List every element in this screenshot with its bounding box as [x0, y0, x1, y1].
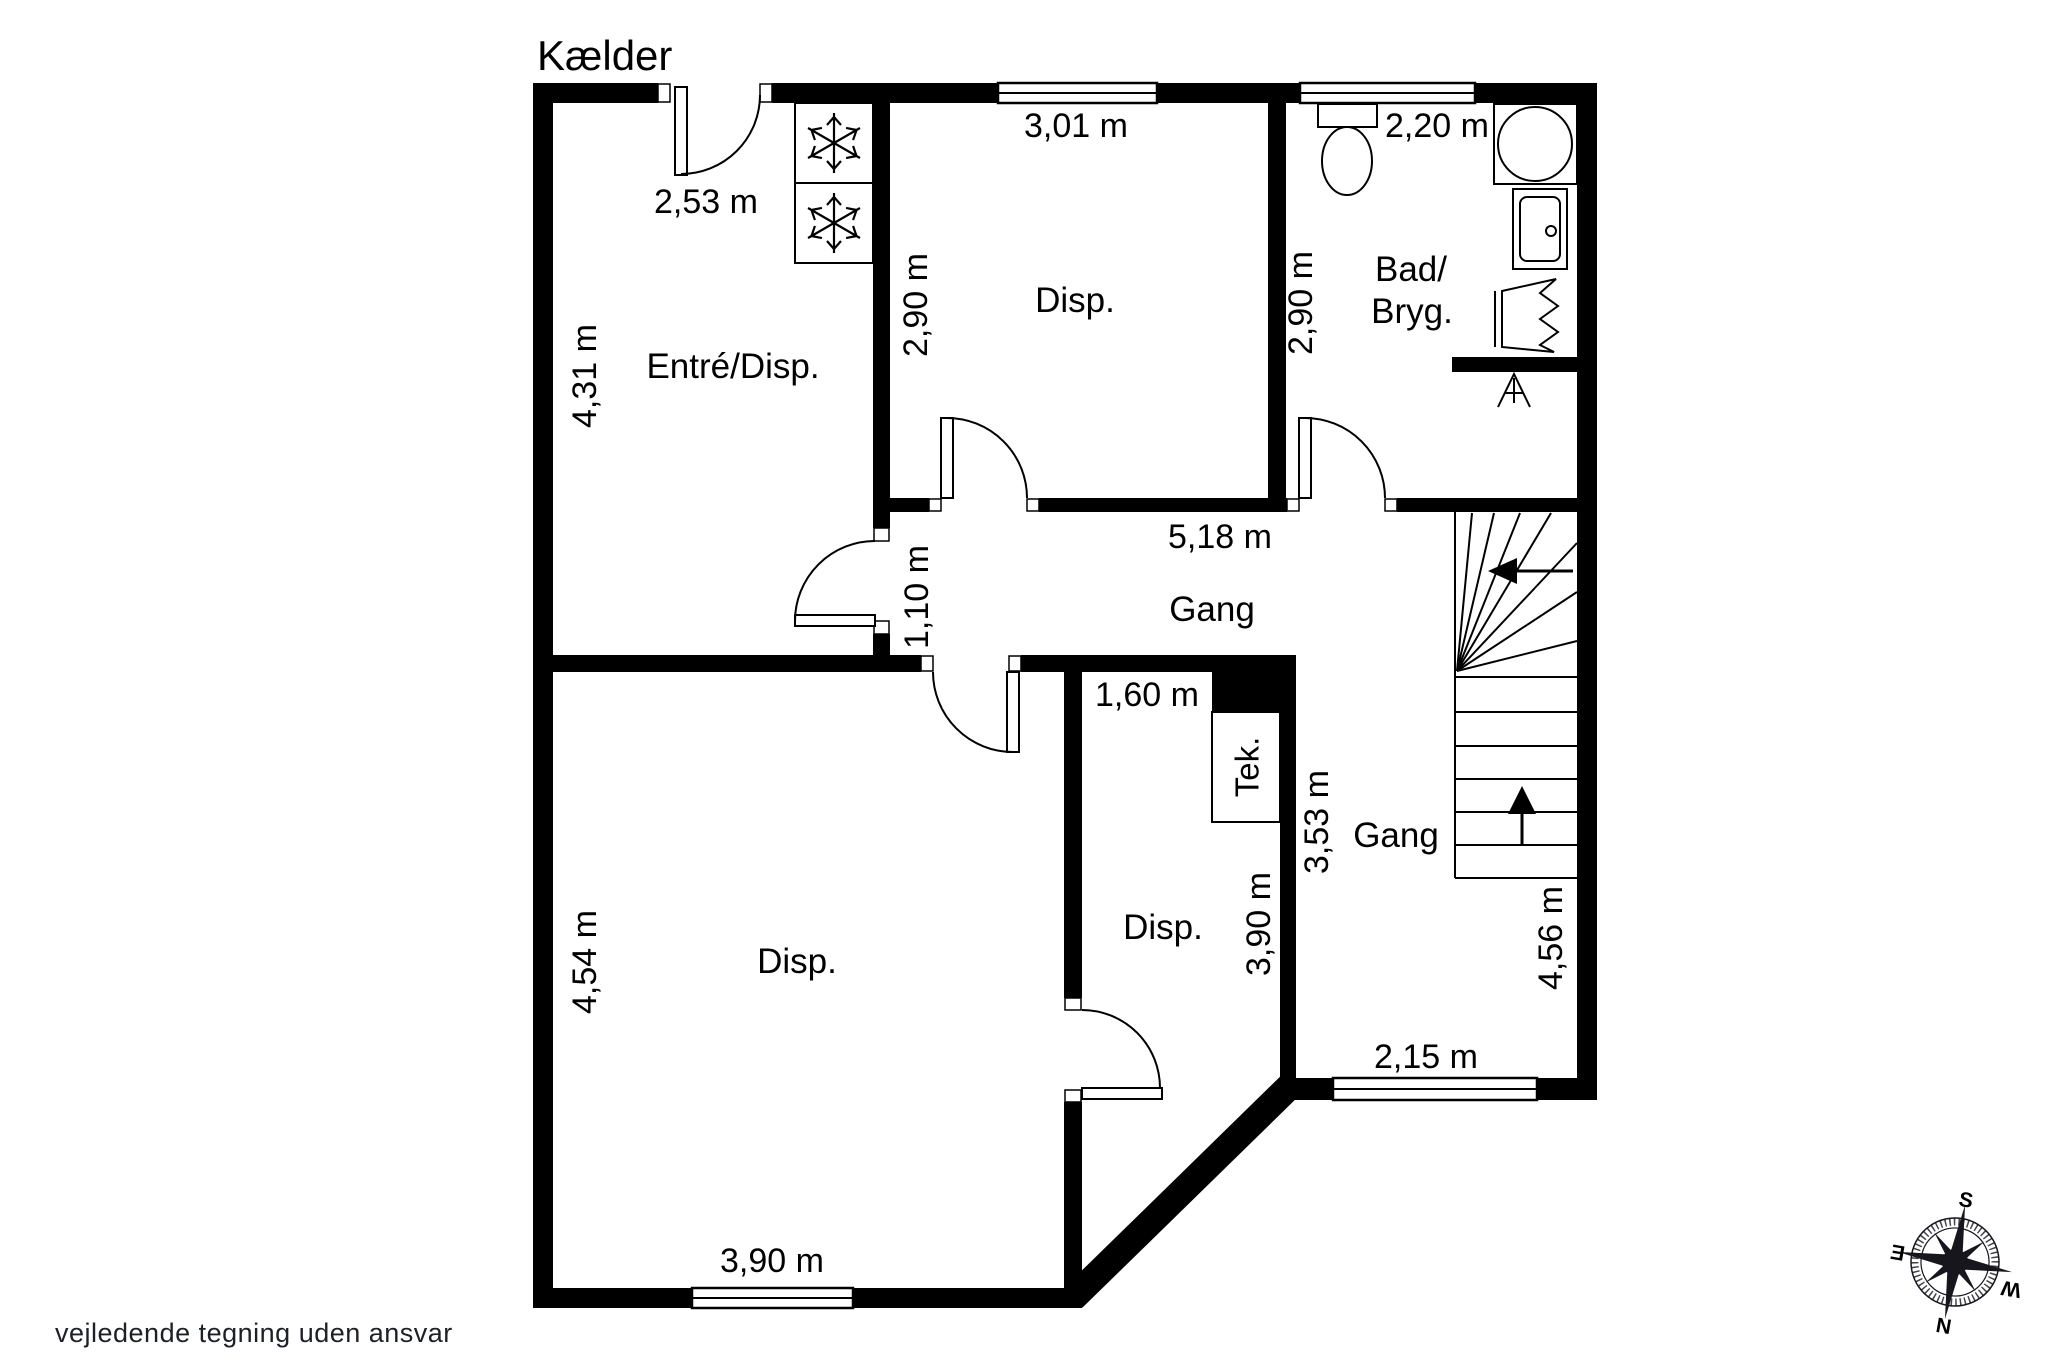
floorplan-drawing: Tek. Kælder Entré/Disp. Disp. Bad/ Bryg.… — [0, 0, 2048, 1360]
compass-rose: S E W N — [1878, 1178, 2037, 1350]
washing-machine-icon — [1494, 104, 1577, 184]
room-label-disp-mid: Disp. — [1123, 908, 1203, 947]
room-label-tek: Tek. — [1229, 737, 1266, 798]
stair-arrow-start-icon — [1498, 374, 1530, 407]
dimension-label: 1,10 m — [898, 545, 936, 649]
door-bigdisp-middisp — [1065, 998, 1162, 1102]
dimension-label: 4,56 m — [1532, 886, 1570, 990]
entry-door — [658, 84, 772, 175]
dimension-label: 5,18 m — [1168, 518, 1272, 556]
room-label-bad-line1: Bad/ — [1375, 250, 1447, 289]
dimension-label: 2,20 m — [1385, 107, 1489, 145]
toilet-icon — [1318, 104, 1377, 195]
floorplan-page: Tek. Kælder Entré/Disp. Disp. Bad/ Bryg.… — [0, 0, 2048, 1360]
window — [692, 1288, 853, 1308]
compass-letter-east: E — [1889, 1241, 1907, 1266]
dimension-label: 3,90 m — [1240, 872, 1278, 976]
window — [998, 83, 1157, 103]
dimension-label: 3,01 m — [1024, 107, 1128, 145]
compass-letter-north: N — [1934, 1314, 1953, 1339]
winder-treads — [1457, 513, 1577, 671]
dimension-label: 4,54 m — [566, 910, 604, 1014]
door-gang-bigdisp — [921, 656, 1021, 752]
chimney-block — [1212, 672, 1293, 712]
door-entre-gang — [795, 528, 889, 634]
stairs — [1455, 374, 1577, 878]
floorplan-title: Kælder — [537, 32, 672, 79]
dimension-label: 2,90 m — [897, 253, 935, 357]
dimension-label: 2,90 m — [1282, 251, 1320, 355]
room-label-bad-line2: Bryg. — [1371, 292, 1453, 331]
stair-arrow-up-icon — [1508, 786, 1536, 846]
freezer-icons — [795, 103, 873, 263]
dimension-label: 3,53 m — [1298, 770, 1336, 874]
door-gang-bad — [1287, 418, 1397, 511]
room-label-disp-top: Disp. — [1035, 281, 1115, 320]
compass-letter-south: S — [1957, 1188, 1975, 1213]
dimension-label: 4,31 m — [566, 324, 604, 428]
compass-letter-west: W — [1999, 1276, 2023, 1302]
tek-room: Tek. — [1212, 712, 1280, 822]
diagonal-wall — [1073, 1080, 1296, 1298]
room-label-gang-lower: Gang — [1353, 816, 1439, 855]
disclaimer-text: vejledende tegning uden ansvar — [55, 1318, 453, 1348]
sink-icon — [1513, 189, 1567, 269]
dimension-label: 1,60 m — [1095, 676, 1199, 714]
dimension-label: 2,53 m — [654, 183, 758, 221]
room-label-disp-big: Disp. — [757, 942, 837, 981]
shower-icon — [1495, 279, 1558, 352]
window — [1300, 83, 1475, 103]
door-gang-disp — [929, 418, 1039, 511]
window — [1333, 1078, 1537, 1100]
dimension-label: 2,15 m — [1374, 1038, 1478, 1076]
room-label-entre: Entré/Disp. — [646, 347, 819, 386]
dimension-label: 3,90 m — [720, 1242, 824, 1280]
room-label-gang-upper: Gang — [1169, 590, 1255, 629]
